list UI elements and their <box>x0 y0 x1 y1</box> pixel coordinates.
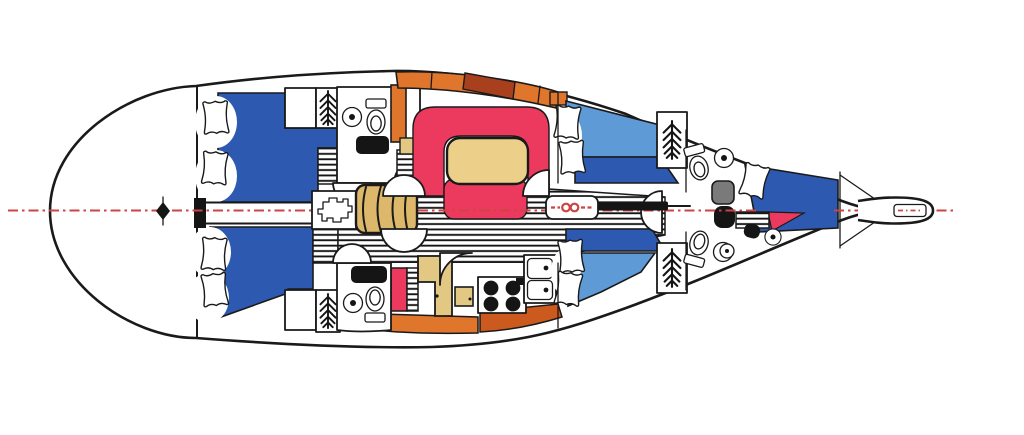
pillow <box>201 272 229 307</box>
pillow <box>203 101 229 134</box>
shower-seat <box>712 181 734 204</box>
bowsprit-anchor-fitting <box>858 198 933 224</box>
cabinet-tan <box>400 138 414 154</box>
stove <box>478 277 526 313</box>
saloon-table <box>447 138 528 184</box>
sink-icon <box>343 108 362 127</box>
vanity-counter <box>351 266 387 283</box>
rudder-post-housing <box>194 198 206 228</box>
boat-plan <box>0 0 1024 435</box>
pillow <box>201 237 227 270</box>
aft-corridor <box>194 198 315 228</box>
sink-icon <box>765 229 781 245</box>
pillow <box>558 239 585 273</box>
nav-locker-red <box>391 268 407 311</box>
pillow <box>559 140 586 174</box>
locker <box>285 290 316 330</box>
locker-dark <box>714 206 735 228</box>
toilet-icon <box>365 287 385 322</box>
icebox-lid <box>455 287 473 306</box>
sink-icon <box>344 294 363 313</box>
mast-step <box>546 196 598 219</box>
cabinet-vertical <box>391 85 406 142</box>
nav-locker-striped <box>407 268 418 311</box>
toilet-icon <box>366 99 386 134</box>
sink-icon <box>715 149 734 168</box>
steps-locker <box>318 148 339 184</box>
pillow <box>201 151 228 185</box>
galley-sinks <box>524 255 556 303</box>
engine-hatch <box>312 191 356 229</box>
deck-plan-svg <box>0 0 1024 435</box>
vanity-counter <box>356 136 389 154</box>
locker <box>285 88 316 128</box>
